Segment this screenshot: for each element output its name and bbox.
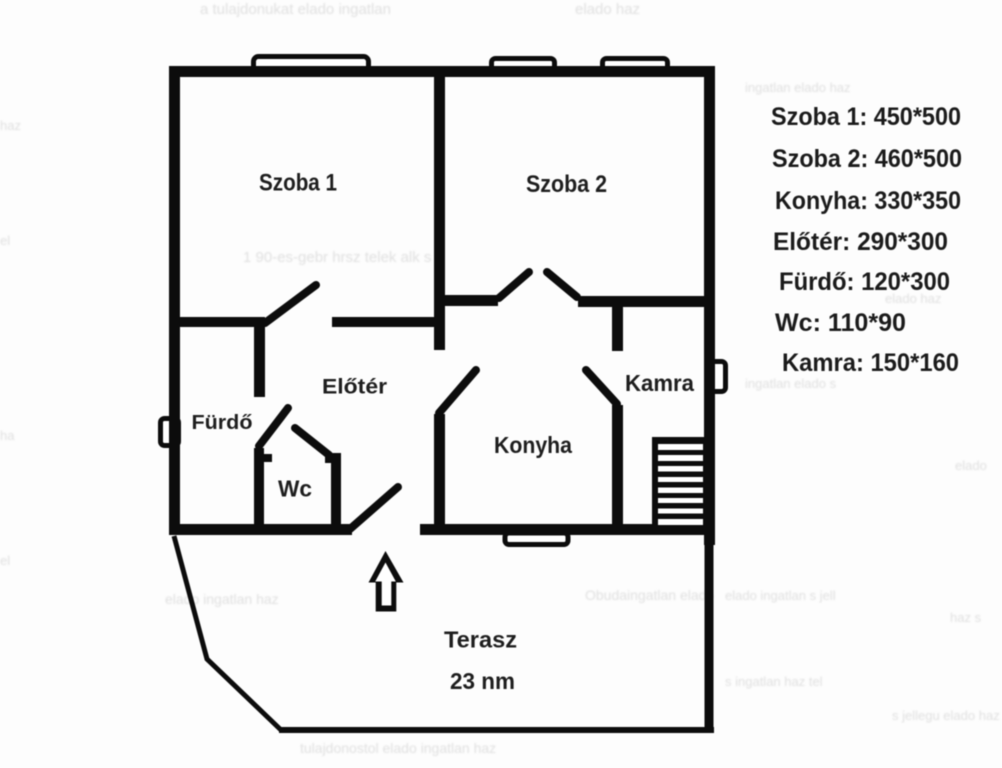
svg-text:elado ingatlan s jell: elado ingatlan s jell	[725, 588, 836, 603]
svg-text:tulajdonostol elado ingatlan h: tulajdonostol elado ingatlan haz	[300, 740, 496, 756]
svg-text:1 90-es-gebr hrsz telek alk s: 1 90-es-gebr hrsz telek alk s	[243, 249, 431, 266]
svg-text:Szoba 1: Szoba 1	[259, 170, 337, 197]
svg-text:ha: ha	[0, 428, 15, 443]
svg-text:Fürdő: 120*300: Fürdő: 120*300	[779, 268, 950, 296]
svg-text:Wc: 110*90: Wc: 110*90	[775, 309, 906, 337]
svg-text:elado haz: elado haz	[575, 1, 640, 18]
svg-text:Obudaingatlan elado: Obudaingatlan elado	[585, 587, 714, 603]
svg-text:Fürdő: Fürdő	[192, 412, 253, 434]
svg-text:Előtér: Előtér	[322, 376, 387, 399]
svg-text:s jellegu elado haz: s jellegu elado haz	[892, 708, 1000, 723]
svg-text:23 nm: 23 nm	[450, 668, 515, 694]
svg-text:Előtér: 290*300: Előtér: 290*300	[773, 228, 948, 256]
svg-text:haz: haz	[0, 118, 21, 133]
svg-text:s ingatlan haz tel: s ingatlan haz tel	[725, 674, 823, 689]
svg-text:Terasz: Terasz	[444, 627, 517, 653]
svg-text:Kamra: Kamra	[625, 370, 694, 396]
svg-text:a tulajdonukat elado ingatlan: a tulajdonukat elado ingatlan	[200, 1, 391, 18]
svg-text:Kamra: 150*160: Kamra: 150*160	[782, 349, 959, 377]
svg-text:Konyha: 330*350: Konyha: 330*350	[775, 187, 961, 215]
svg-text:el: el	[0, 553, 10, 568]
svg-text:Szoba 2: 460*500: Szoba 2: 460*500	[772, 145, 962, 173]
svg-text:Konyha: Konyha	[494, 432, 572, 458]
svg-text:ingatlan elado haz: ingatlan elado haz	[745, 80, 851, 95]
svg-text:Szoba 2: Szoba 2	[526, 171, 607, 198]
svg-text:elado: elado	[955, 458, 987, 473]
svg-text:el: el	[0, 233, 10, 248]
svg-text:Wc: Wc	[278, 476, 312, 502]
svg-text:haz s: haz s	[950, 610, 982, 625]
svg-text:ingatlan elado s: ingatlan elado s	[745, 376, 837, 391]
svg-text:Szoba 1: 450*500: Szoba 1: 450*500	[771, 103, 961, 131]
svg-text:elado ingatlan haz: elado ingatlan haz	[165, 591, 279, 607]
